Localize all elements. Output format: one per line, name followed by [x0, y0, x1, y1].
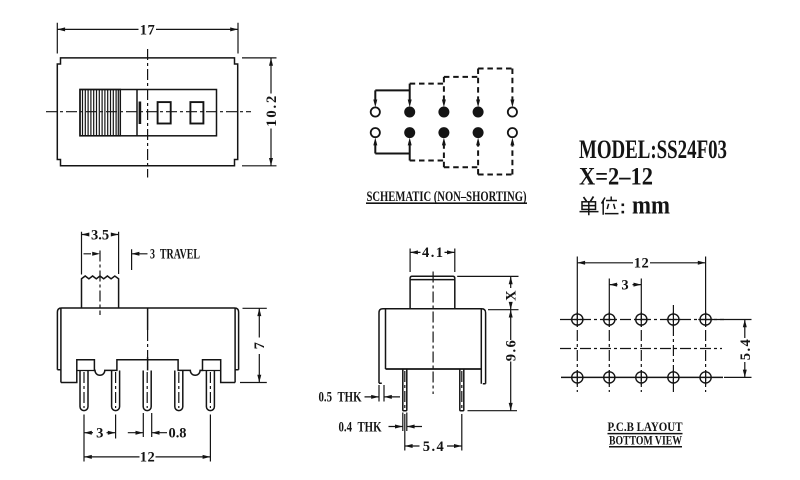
svg-text:9.6: 9.6	[503, 340, 519, 361]
svg-text:mm: mm	[632, 191, 670, 220]
svg-text:3: 3	[96, 426, 103, 442]
svg-text:MODEL:SS24F03: MODEL:SS24F03	[579, 135, 727, 164]
svg-text:10.2: 10.2	[264, 96, 280, 127]
svg-text:12: 12	[634, 256, 649, 272]
svg-text:17: 17	[140, 22, 155, 38]
svg-text:3.5: 3.5	[91, 227, 109, 243]
svg-text:X: X	[503, 290, 519, 301]
svg-text:3 TRAVEL: 3 TRAVEL	[150, 247, 200, 263]
svg-text:12: 12	[140, 450, 155, 466]
svg-text:0.4 THK: 0.4 THK	[339, 419, 383, 435]
svg-text:5.4: 5.4	[738, 339, 754, 360]
svg-text:0.5 THK: 0.5 THK	[319, 390, 363, 406]
svg-text:4.1: 4.1	[422, 245, 443, 261]
svg-text:5.4: 5.4	[423, 439, 444, 455]
svg-text:3: 3	[621, 277, 628, 293]
svg-text:0.8: 0.8	[169, 426, 187, 442]
svg-text:BOTTOM VIEW: BOTTOM VIEW	[609, 432, 682, 447]
svg-text:7: 7	[252, 342, 268, 349]
svg-text:X=2–12: X=2–12	[579, 164, 653, 191]
